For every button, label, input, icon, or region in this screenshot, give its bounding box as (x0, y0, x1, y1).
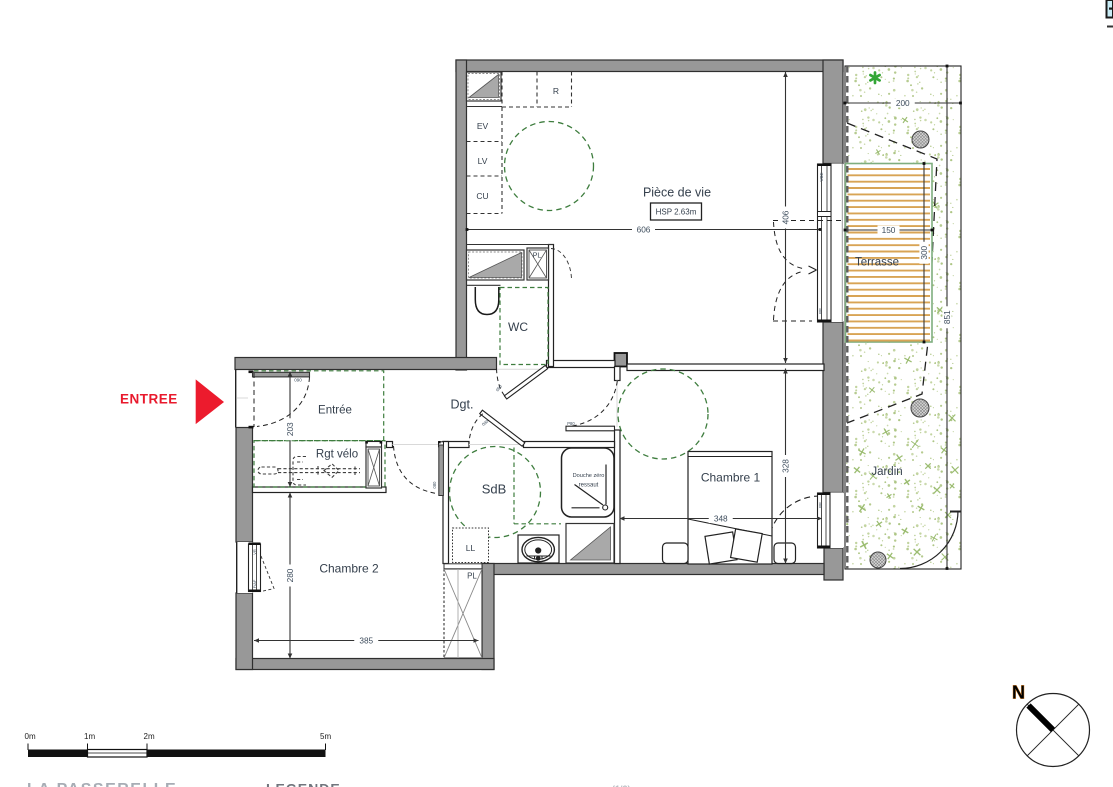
svg-text:385: 385 (359, 635, 373, 645)
svg-text:F/AF: F/AF (252, 579, 257, 588)
svg-text:SdB: SdB (482, 482, 507, 497)
svg-text:HSP 2.63m: HSP 2.63m (656, 208, 697, 217)
svg-text:PL: PL (533, 253, 542, 260)
svg-text:090: 090 (495, 383, 504, 392)
svg-text:Chambre 1: Chambre 1 (701, 471, 761, 485)
svg-text:5m: 5m (320, 732, 331, 741)
svg-text:0m: 0m (25, 732, 36, 741)
svg-text:VBE: VBE (819, 172, 824, 181)
svg-text:VR: VR (252, 549, 257, 555)
svg-text:2m: 2m (144, 732, 155, 741)
svg-text:PF: PF (818, 502, 823, 508)
svg-text:1m: 1m (84, 732, 95, 741)
svg-text:PF: PF (818, 308, 823, 314)
svg-text:080: 080 (432, 481, 437, 489)
svg-text:PL: PL (467, 572, 477, 581)
svg-text:203: 203 (285, 422, 295, 436)
svg-text:WC: WC (508, 320, 528, 334)
svg-text:P80: P80 (567, 421, 575, 426)
svg-text:200: 200 (896, 98, 910, 108)
svg-text:Douche zéro: Douche zéro (573, 473, 605, 479)
svg-text:Pièce de vie: Pièce de vie (643, 186, 711, 200)
svg-text:150: 150 (882, 225, 896, 235)
svg-text:090: 090 (294, 378, 302, 383)
svg-text:N: N (1012, 683, 1025, 703)
svg-text:ENTREE: ENTREE (120, 392, 178, 407)
svg-text:R: R (553, 86, 559, 96)
svg-text:Rgt vélo: Rgt vélo (316, 449, 358, 461)
svg-text:LEGENDE: LEGENDE (266, 781, 341, 787)
svg-text:300: 300 (919, 245, 929, 259)
svg-text:ressaut: ressaut (579, 483, 599, 489)
svg-text:406: 406 (780, 210, 790, 224)
svg-text:CU: CU (476, 191, 488, 201)
svg-text:Chambre 2: Chambre 2 (319, 562, 379, 576)
svg-text:Dgt.: Dgt. (451, 398, 474, 412)
svg-text:LV: LV (478, 156, 488, 166)
svg-text:Jardin: Jardin (871, 466, 902, 478)
svg-text:328: 328 (780, 459, 790, 473)
svg-text:EV: EV (477, 121, 489, 131)
svg-text:Terrasse: Terrasse (855, 257, 899, 269)
svg-text:280: 280 (285, 568, 295, 582)
svg-text:LL: LL (466, 543, 476, 553)
svg-text:348: 348 (714, 513, 728, 523)
svg-text:606: 606 (637, 224, 651, 234)
svg-text:Entrée: Entrée (318, 405, 352, 417)
svg-text:851: 851 (942, 310, 952, 324)
svg-text:LA PASSERELLE: LA PASSERELLE (27, 781, 177, 787)
